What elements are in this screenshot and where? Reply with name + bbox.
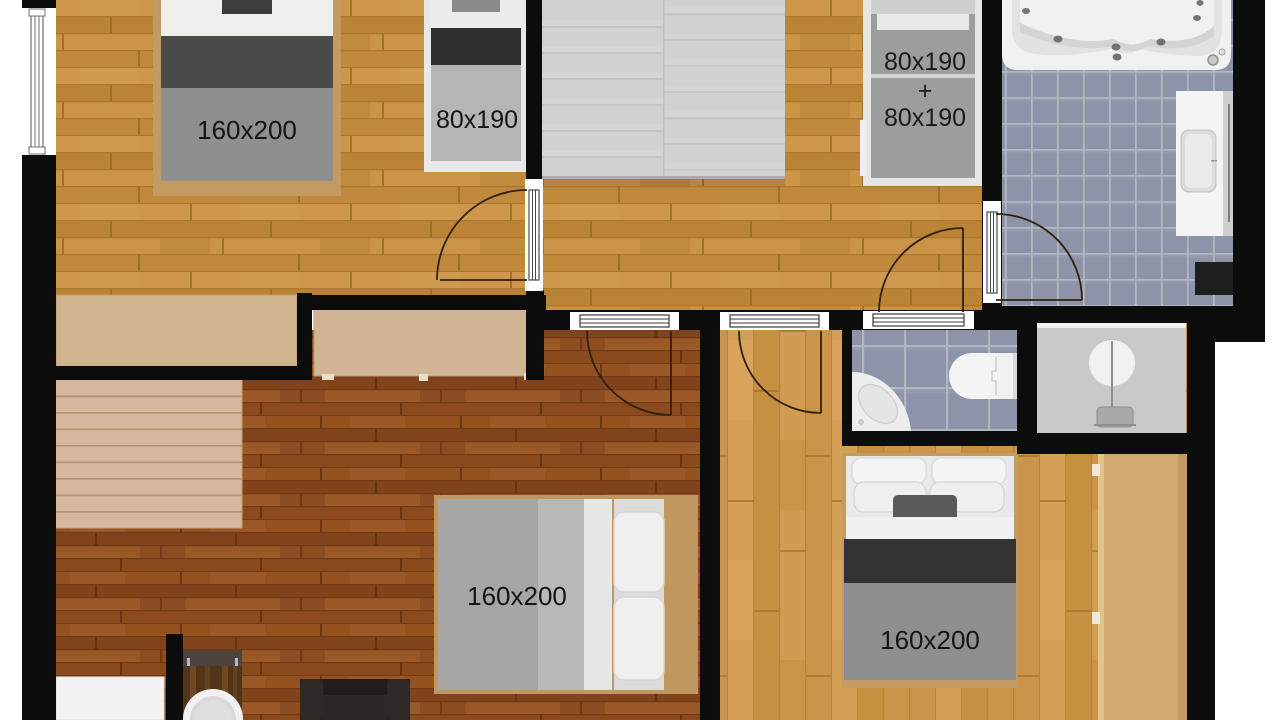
svg-text:160x200: 160x200 xyxy=(467,581,567,611)
svg-text:80x190: 80x190 xyxy=(884,48,966,76)
svg-text:80x190: 80x190 xyxy=(884,104,966,132)
svg-text:160x200: 160x200 xyxy=(197,115,297,145)
svg-text:160x200: 160x200 xyxy=(880,625,980,655)
svg-text:80x190: 80x190 xyxy=(436,106,518,134)
svg-text:+: + xyxy=(918,77,933,105)
